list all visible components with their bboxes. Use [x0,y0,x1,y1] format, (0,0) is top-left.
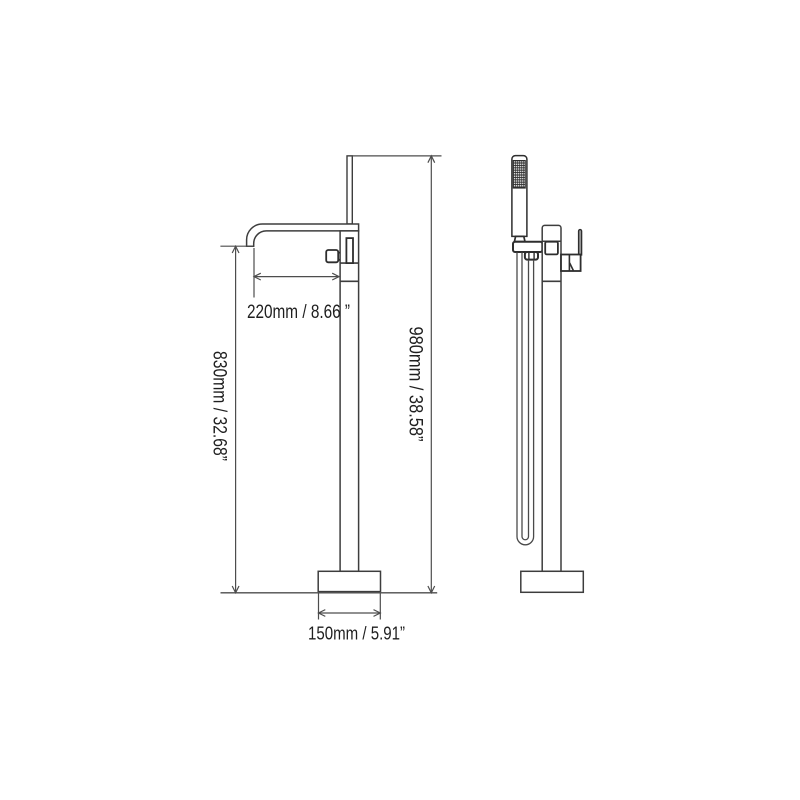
svg-text:150mm / 5.91”: 150mm / 5.91” [308,624,405,644]
svg-text:830mm / 32.68”: 830mm / 32.68” [209,351,230,461]
svg-text:980mm / 38.58”: 980mm / 38.58” [405,327,426,442]
svg-text:220mm / 8.66 ”: 220mm / 8.66 ” [247,301,350,323]
